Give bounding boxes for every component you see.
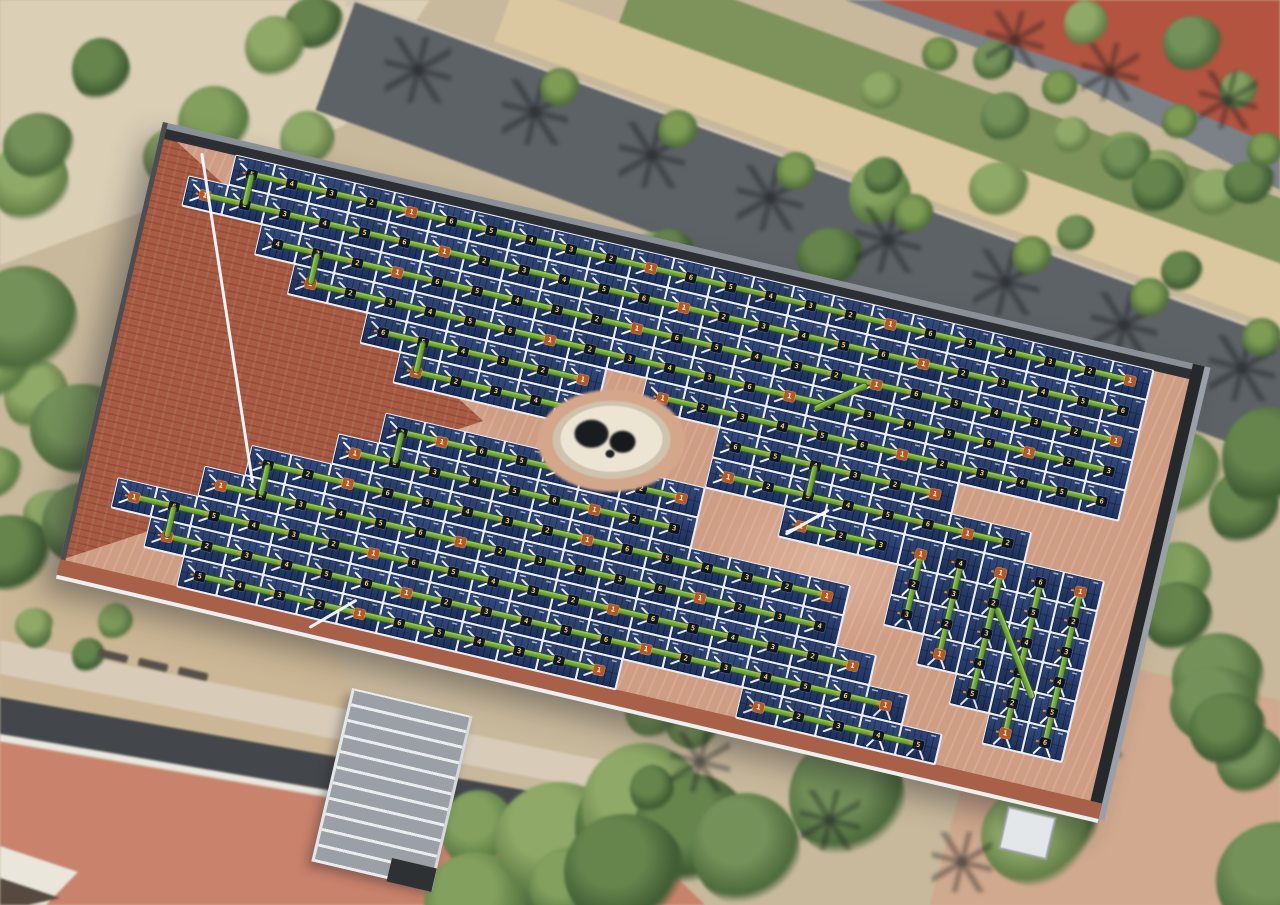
string-junction-label[interactable]: 1 [367,547,380,559]
tree-canopy [1054,117,1091,154]
tree-canopy [245,16,305,78]
string-junction-label[interactable]: 3 [325,187,338,199]
string-junction-label[interactable]: 6 [910,388,923,400]
palm-tree-crown [894,194,934,234]
string-junction-label[interactable]: 4 [973,657,986,669]
string-junction-label[interactable]: 1 [783,390,796,402]
string-junction-label[interactable]: 1 [917,357,930,369]
string-junction-label[interactable]: 1 [544,334,557,346]
string-junction-label[interactable]: 1 [994,567,1007,579]
string-junction-label[interactable]: 2 [696,401,709,413]
string-junction-label[interactable]: 5 [374,517,387,529]
string-junction-label[interactable]: 4 [520,614,533,626]
palm-tree-shadow [986,11,1044,69]
string-junction-label[interactable]: 4 [233,579,246,591]
string-junction-label[interactable]: 2 [536,364,549,376]
string-junction-label[interactable]: 6 [647,612,660,624]
string-junction-label[interactable]: 3 [527,584,540,596]
string-junction-label[interactable]: 4 [1020,636,1033,648]
string-junction-label[interactable]: 3 [501,515,514,527]
string-junction-label[interactable]: 5 [799,680,812,692]
string-junction-label[interactable]: 2 [733,601,746,613]
tree-canopy [692,793,800,905]
string-junction-label[interactable]: 4 [990,406,1003,418]
string-junction-label[interactable]: 2 [806,650,819,662]
tree-canopy [15,608,53,643]
string-junction-label[interactable]: 2 [940,618,953,630]
string-junction-label[interactable]: 4 [663,362,676,374]
string-junction-label[interactable]: 4 [776,420,789,432]
string-junction-label[interactable]: 3 [294,498,307,510]
string-junction-label[interactable]: 2 [936,457,949,469]
string-junction-label[interactable]: 2 [1070,425,1083,437]
palm-tree-crown [1042,70,1078,106]
string-junction-label[interactable]: 1 [677,301,690,313]
string-junction-label[interactable]: 2 [844,308,857,320]
string-junction-label[interactable]: 4 [842,499,855,511]
string-junction-label[interactable]: 3 [741,571,754,583]
string-junction-label[interactable]: 2 [628,512,641,524]
string-junction-label[interactable]: 2 [591,313,604,325]
string-junction-label[interactable]: 1 [933,648,946,660]
string-junction-label[interactable]: 5 [912,738,925,750]
palm-tree-crown [1130,278,1170,318]
palm-tree-crown [540,68,580,108]
string-junction-label[interactable]: 4 [797,329,810,341]
string-junction-label[interactable]: 3 [384,296,397,308]
string-junction-label[interactable]: 5 [816,429,829,441]
string-junction-label[interactable]: 6 [475,445,488,457]
string-junction-label[interactable]: 5 [320,568,333,580]
string-junction-label[interactable]: 6 [600,633,613,645]
string-junction-label[interactable]: 6 [360,577,373,589]
string-junction-label[interactable]: 5 [966,687,979,699]
string-junction-label[interactable]: 2 [583,343,596,355]
string-junction-label[interactable]: 3 [668,522,681,534]
string-junction-label[interactable]: 4 [457,345,470,357]
string-junction-label[interactable]: 1 [391,266,404,278]
tree-canopy [72,38,130,102]
string-junction-label[interactable]: 4 [1053,676,1066,688]
string-junction-label[interactable]: 1 [675,492,688,504]
string-junction-label[interactable]: 2 [440,596,453,608]
string-junction-label[interactable]: 6 [685,271,698,283]
string-junction-label[interactable]: 1 [581,533,594,545]
string-junction-label[interactable]: 6 [877,348,890,360]
string-junction-label[interactable]: 6 [729,441,742,453]
string-junction-label[interactable]: 5 [1077,395,1090,407]
string-junction-label[interactable]: 4 [318,217,331,229]
string-junction-label[interactable]: 3 [980,627,993,639]
string-junction-label[interactable]: 3 [240,549,253,561]
string-junction-label[interactable]: 3 [804,299,817,311]
string-junction-label[interactable]: 1 [870,378,883,390]
string-junction-label[interactable]: 4 [701,561,714,573]
string-junction-label[interactable]: 6 [445,215,458,227]
string-junction-label[interactable]: 4 [247,519,260,531]
string-junction-label[interactable]: 1 [400,586,413,598]
string-junction-label[interactable]: 4 [759,671,772,683]
string-junction-label[interactable]: 3 [497,354,510,366]
string-junction-label[interactable]: 3 [565,243,578,255]
string-junction-label[interactable]: 4 [813,620,826,632]
string-junction-label[interactable]: 4 [529,394,542,406]
string-junction-label[interactable]: 6 [407,556,420,568]
string-junction-label[interactable]: 1 [405,206,418,218]
string-junction-label[interactable]: 3 [863,408,876,420]
string-junction-label[interactable]: 1 [961,527,974,539]
string-junction-label[interactable]: 5 [882,508,895,520]
string-junction-label[interactable]: 3 [790,359,803,371]
string-junction-label[interactable]: 4 [285,177,298,189]
string-junction-label[interactable]: 3 [766,640,779,652]
string-junction-label[interactable]: 4 [750,350,763,362]
palm-tree-shadow [1199,71,1257,129]
string-junction-label[interactable]: 1 [1124,374,1137,386]
palm-tree-shadow [385,37,451,103]
string-junction-label[interactable]: 2 [365,196,378,208]
string-junction-label[interactable]: 3 [428,466,441,478]
string-junction-label[interactable]: 5 [950,397,963,409]
string-junction-label[interactable]: 1 [884,318,897,330]
string-junction-label[interactable]: 2 [541,524,554,536]
string-junction-label[interactable]: 5 [471,285,484,297]
string-junction-label[interactable]: 4 [511,294,524,306]
string-junction-label[interactable]: 2 [957,367,970,379]
string-junction-label[interactable]: 2 [1062,455,1075,467]
string-junction-label[interactable]: 4 [334,507,347,519]
string-junction-label[interactable]: 6 [1095,495,1108,507]
string-junction-label[interactable]: 2 [478,254,491,266]
string-junction-label[interactable]: 3 [900,608,913,620]
string-junction-label[interactable]: 1 [438,245,451,257]
string-junction-label[interactable]: 1 [454,535,467,547]
string-junction-label[interactable]: 1 [929,487,942,499]
string-junction-label[interactable]: 4 [468,475,481,487]
string-junction-label[interactable]: 4 [903,418,916,430]
string-junction-label[interactable]: 2 [679,652,692,664]
string-junction-label[interactable]: 6 [856,439,869,451]
palm-tree-crown [1242,318,1280,358]
tree-canopy [1224,161,1276,204]
string-junction-label[interactable]: 2 [762,480,775,492]
vent-opening [575,420,609,448]
palm-tree-crown [1162,104,1198,140]
string-junction-label[interactable]: 5 [1046,706,1059,718]
string-junction-label[interactable]: 1 [341,477,354,489]
tree-canopy [1064,0,1108,48]
string-junction-label[interactable]: 5 [447,566,460,578]
string-junction-label[interactable]: 5 [943,427,956,439]
string-junction-label[interactable]: 6 [1034,576,1047,588]
tree-canopy [1163,16,1223,72]
string-junction-label[interactable]: 6 [983,436,996,448]
string-junction-label[interactable]: 6 [839,689,852,701]
string-junction-label[interactable]: 6 [548,494,561,506]
string-junction-label[interactable]: 5 [515,454,528,466]
string-junction-label[interactable]: 6 [921,518,934,530]
string-junction-label[interactable]: 4 [726,631,739,643]
string-junction-label[interactable]: 6 [377,326,390,338]
string-junction-label[interactable]: 2 [301,468,314,480]
string-junction-label[interactable]: 1 [576,373,589,385]
string-junction-label[interactable]: 2 [567,594,580,606]
string-junction-label[interactable]: 3 [1044,355,1057,367]
string-junction-label[interactable]: 5 [1055,485,1068,497]
string-junction-label[interactable]: 3 [513,645,526,657]
string-junction-label[interactable]: 6 [621,543,634,555]
string-junction-label[interactable]: 3 [623,352,636,364]
string-junction-label[interactable]: 6 [431,275,444,287]
string-junction-label[interactable]: 1 [645,262,658,274]
string-junction-label[interactable]: 3 [976,467,989,479]
palm-tree-crown [1012,236,1052,276]
string-junction-label[interactable]: 5 [421,496,434,508]
string-junction-label[interactable]: 3 [518,264,531,276]
string-junction-label[interactable]: 5 [710,341,723,353]
string-junction-label[interactable]: 5 [464,315,477,327]
string-junction-label[interactable]: 3 [273,589,286,601]
string-junction-label[interactable]: 3 [551,303,564,315]
vent-opening [610,431,636,453]
palm-tree-shadow [1081,43,1139,101]
string-junction-label[interactable]: 1 [630,322,643,334]
string-junction-label[interactable]: 4 [764,290,777,302]
string-junction-label[interactable]: 6 [1117,404,1130,416]
string-junction-label[interactable]: 5 [661,552,674,564]
string-junction-label[interactable]: 1 [879,699,892,711]
string-junction-label[interactable]: 1 [999,727,1012,739]
string-junction-label[interactable]: 6 [670,331,683,343]
string-junction-label[interactable]: 3 [757,320,770,332]
string-junction-label[interactable]: 5 [433,626,446,638]
string-junction-label[interactable]: 1 [1074,585,1087,597]
string-junction-label[interactable]: 3 [1060,646,1073,658]
string-junction-label[interactable]: 6 [398,236,411,248]
string-junction-label[interactable]: 2 [553,654,566,666]
tree-canopy [981,92,1030,142]
string-junction-label[interactable]: 4 [1004,346,1017,358]
string-junction-label[interactable]: 1 [820,589,833,601]
string-junction-label[interactable]: 2 [792,710,805,722]
string-junction-label[interactable]: 1 [215,479,228,491]
string-junction-label[interactable]: 2 [313,598,326,610]
string-junction-label[interactable]: 4 [1015,476,1028,488]
string-junction-label[interactable]: 3 [997,376,1010,388]
string-junction-label[interactable]: 1 [607,603,620,615]
string-junction-label[interactable]: 4 [424,305,437,317]
palm-tree-crown [1247,132,1280,168]
string-junction-label[interactable]: 5 [485,224,498,236]
string-junction-label[interactable]: 3 [1030,416,1043,428]
string-junction-label[interactable]: 2 [717,311,730,323]
string-junction-label[interactable]: 1 [846,659,859,671]
string-junction-label[interactable]: 5 [964,337,977,349]
string-junction-label[interactable]: 2 [907,578,920,590]
string-junction-label[interactable]: 5 [724,280,737,292]
tree-canopy [1189,693,1266,766]
tree-canopy [98,603,132,641]
string-junction-label[interactable]: 2 [780,580,793,592]
string-junction-label[interactable]: 5 [614,573,627,585]
string-junction-label[interactable]: 3 [832,720,845,732]
string-junction-label[interactable]: 1 [348,447,361,459]
tree-canopy [1161,251,1203,292]
string-junction-label[interactable]: 4 [558,273,571,285]
string-junction-label[interactable]: 4 [1037,385,1050,397]
string-junction-label[interactable]: 3 [534,554,547,566]
string-junction-label[interactable]: 5 [769,450,782,462]
string-junction-label[interactable]: 3 [489,385,502,397]
string-junction-label[interactable]: 2 [351,257,364,269]
string-junction-label[interactable]: 2 [830,369,843,381]
string-junction-label[interactable]: 5 [193,570,206,582]
string-junction-label[interactable]: 6 [638,292,651,304]
string-junction-label[interactable]: 6 [654,582,667,594]
string-junction-label[interactable]: 2 [605,252,618,264]
string-junction-label[interactable]: 1 [752,701,765,713]
string-junction-label[interactable]: 2 [1001,536,1014,548]
string-junction-label[interactable]: 6 [504,324,517,336]
tree-canopy [0,446,24,499]
string-junction-label[interactable]: 1 [128,491,141,503]
string-junction-label[interactable]: 2 [1006,697,1019,709]
string-junction-label[interactable]: 3 [736,410,749,422]
string-junction-label[interactable]: 3 [287,528,300,540]
string-junction-label[interactable]: 4 [574,563,587,575]
string-junction-label[interactable]: 2 [450,375,463,387]
string-junction-label[interactable]: 5 [1027,606,1040,618]
string-junction-label[interactable]: 6 [1039,736,1052,748]
string-junction-label[interactable]: 4 [271,238,284,250]
string-junction-label[interactable]: 1 [1109,434,1122,446]
aerial-canvas: 5432165432165432165432112345612345612345… [0,0,1280,905]
string-junction-label[interactable]: 2 [835,529,848,541]
string-junction-label[interactable]: 2 [1067,615,1080,627]
palm-tree-crown [776,152,816,192]
tree-canopy [969,162,1031,216]
string-junction-label[interactable]: 1 [694,592,707,604]
string-junction-label[interactable]: 1 [435,436,448,448]
palm-tree-crown [922,37,958,73]
string-junction-label[interactable]: 1 [353,607,366,619]
palm-tree-shadow [670,732,730,792]
string-junction-label[interactable]: 3 [874,538,887,550]
palm-tree-crown [658,110,698,150]
tree-canopy [860,72,904,109]
string-junction-label[interactable]: 2 [889,478,902,490]
vent-opening [605,450,614,458]
string-junction-label[interactable]: 4 [487,575,500,587]
string-junction-label[interactable]: 6 [414,526,427,538]
string-junction-label[interactable]: 3 [1102,465,1115,477]
string-junction-label[interactable]: 4 [872,729,885,741]
string-junction-label[interactable]: 3 [773,610,786,622]
string-junction-label[interactable]: 2 [200,540,213,552]
string-junction-label[interactable]: 4 [280,558,293,570]
string-junction-label[interactable]: 4 [525,234,538,246]
string-junction-label[interactable]: 2 [344,287,357,299]
string-junction-label[interactable]: 1 [1023,446,1036,458]
string-junction-label[interactable]: 1 [722,471,735,483]
string-junction-label[interactable]: 3 [480,605,493,617]
string-junction-label[interactable]: 3 [719,661,732,673]
string-junction-label[interactable]: 5 [358,226,371,238]
string-junction-label[interactable]: 6 [743,380,756,392]
string-junction-label[interactable]: 5 [207,509,220,521]
tree-canopy [0,266,78,376]
string-junction-label[interactable]: 6 [924,327,937,339]
string-junction-label[interactable]: 6 [393,617,406,629]
string-junction-label[interactable]: 1 [592,663,605,675]
tree-canopy [3,113,76,179]
string-junction-label[interactable]: 4 [473,635,486,647]
string-junction-label[interactable]: 6 [381,487,394,499]
string-junction-label[interactable]: 1 [914,548,927,560]
string-junction-label[interactable]: 2 [1084,365,1097,377]
string-junction-label[interactable]: 1 [896,448,909,460]
string-junction-label[interactable]: 4 [461,505,474,517]
string-junction-label[interactable]: 3 [947,587,960,599]
tree-canopy [1132,159,1184,215]
string-junction-label[interactable]: 5 [598,283,611,295]
string-junction-label[interactable]: 4 [954,557,967,569]
string-junction-label[interactable]: 2 [327,538,340,550]
string-junction-label[interactable]: 5 [508,484,521,496]
palm-tree-shadow [800,790,860,850]
string-junction-label[interactable]: 2 [494,545,507,557]
string-junction-label[interactable]: 1 [588,503,601,515]
string-junction-label[interactable]: 5 [686,622,699,634]
string-junction-label[interactable]: 5 [703,371,716,383]
tree-canopy [864,157,903,196]
string-junction-label[interactable]: 5 [837,339,850,351]
string-junction-label[interactable]: 5 [560,624,573,636]
string-junction-label[interactable]: 3 [278,208,291,220]
string-junction-label[interactable]: 1 [639,643,652,655]
string-junction-label[interactable]: 3 [849,469,862,481]
palm-tree-shadow [932,832,992,892]
